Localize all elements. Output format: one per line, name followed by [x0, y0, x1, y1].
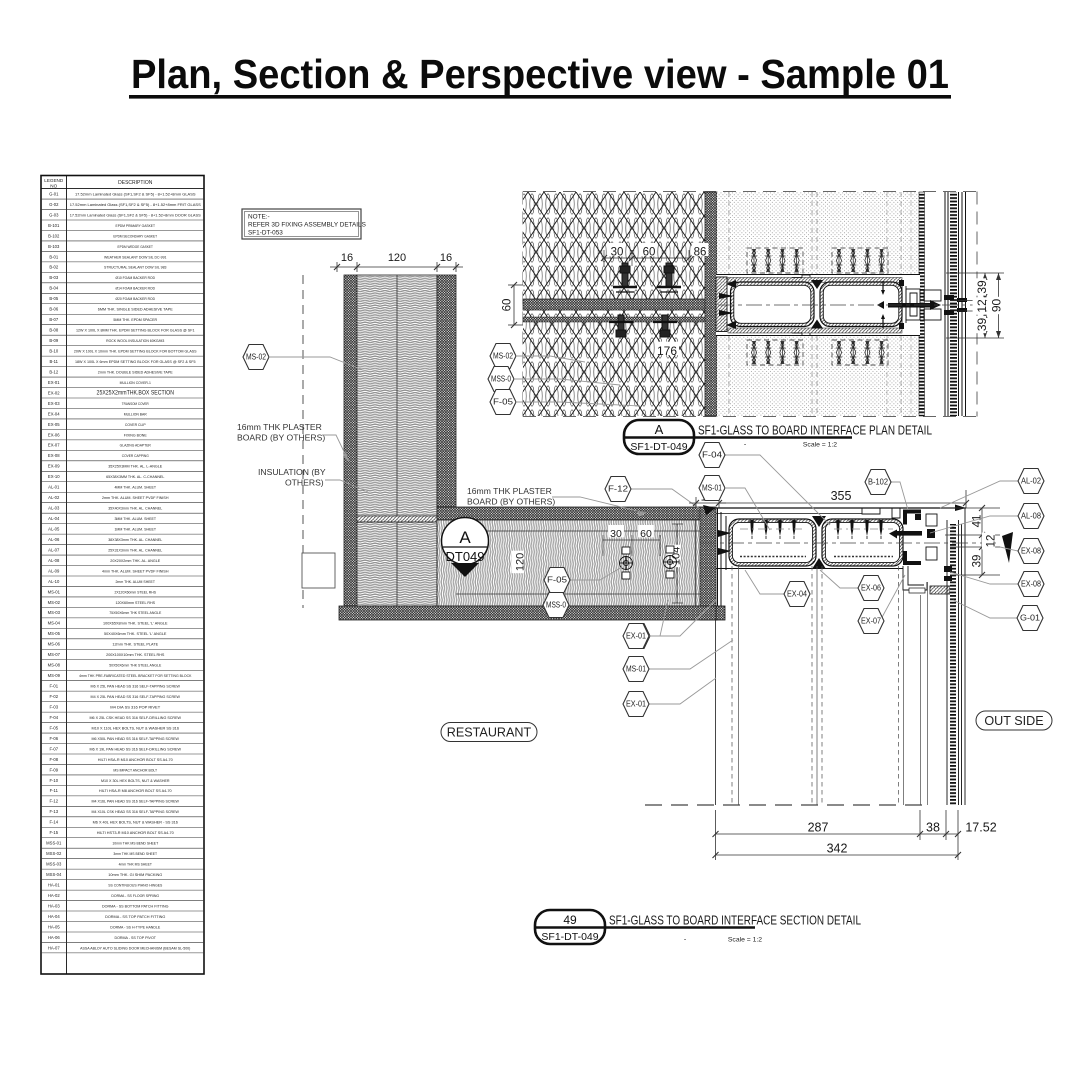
svg-text:ROCK WOOL INSULATION 60KG/M3: ROCK WOOL INSULATION 60KG/M3: [106, 338, 165, 343]
svg-text:SS CONTINUOUS PIANO HINGES: SS CONTINUOUS PIANO HINGES: [108, 882, 162, 887]
svg-text:EX-10: EX-10: [48, 474, 60, 479]
svg-text:75X50X6mm THK STEEL ANGLE: 75X50X6mm THK STEEL ANGLE: [109, 610, 161, 615]
svg-text:MS-04: MS-04: [48, 621, 61, 626]
svg-text:287: 287: [808, 821, 829, 835]
svg-text:AL-08: AL-08: [48, 558, 60, 563]
svg-text:B-05: B-05: [49, 296, 59, 301]
svg-text:M10 X 110L HEX BOLTS, NUT & WA: M10 X 110L HEX BOLTS, NUT & WASHER SS 31…: [92, 725, 180, 730]
svg-text:EX-03: EX-03: [48, 401, 60, 406]
svg-text:60: 60: [502, 299, 514, 312]
svg-text:38X38X3mm THK. AL. CHANNEL: 38X38X3mm THK. AL. CHANNEL: [108, 537, 163, 542]
svg-text:EX-05: EX-05: [48, 422, 60, 427]
svg-text:OTHERS): OTHERS): [285, 478, 324, 488]
svg-text:2X120X60mm STEEL RHS: 2X120X60mm STEEL RHS: [114, 589, 156, 594]
svg-text:EPDM SECONDARY GASKET: EPDM SECONDARY GASKET: [113, 233, 157, 238]
svg-text:REFER 3D FIXING ASSEMBLY DETAI: REFER 3D FIXING ASSEMBLY DETAILS: [248, 222, 366, 229]
svg-text:F-10: F-10: [49, 778, 58, 783]
svg-text:M6 X50L PAN HEAD SS 316 SELF-T: M6 X50L PAN HEAD SS 316 SELF-TAPPING SCR…: [92, 736, 180, 741]
svg-text:M4 X10L CSK HEAD SS 316 SELF-T: M4 X10L CSK HEAD SS 316 SELF-TAPPING SCR…: [92, 809, 180, 814]
svg-text:B-07: B-07: [49, 317, 59, 322]
svg-text:F-07: F-07: [49, 746, 58, 751]
svg-text:EX-08: EX-08: [1021, 580, 1041, 589]
svg-text:HA-06: HA-06: [48, 935, 61, 940]
svg-text:SF1-GLASS TO BOARD INTERFACE S: SF1-GLASS TO BOARD INTERFACE SECTION DET…: [609, 913, 861, 928]
svg-text:G-01: G-01: [1020, 614, 1040, 623]
svg-text:MS-02: MS-02: [48, 600, 61, 605]
svg-text:2mm THK. ALUM SHEET: 2mm THK. ALUM SHEET: [116, 579, 156, 584]
svg-text:F-11: F-11: [50, 788, 59, 793]
svg-text:GLAZING ADAPTER: GLAZING ADAPTER: [120, 443, 151, 448]
svg-text:MS-02: MS-02: [246, 353, 266, 362]
svg-text:B-10: B-10: [49, 348, 59, 353]
svg-text:39: 39: [972, 555, 984, 568]
svg-text:35X25X3MM THK. AL. L-ANGLE: 35X25X3MM THK. AL. L-ANGLE: [108, 464, 162, 469]
svg-text:60: 60: [640, 528, 652, 540]
svg-text:MS-01: MS-01: [48, 589, 61, 594]
svg-text:MSS-01: MSS-01: [46, 841, 62, 846]
svg-text:F-14: F-14: [49, 820, 58, 825]
svg-text:OUT SIDE: OUT SIDE: [984, 714, 1043, 728]
svg-text:HA-01: HA-01: [48, 882, 61, 887]
svg-text:HA-07: HA-07: [48, 945, 61, 950]
svg-text:B-102: B-102: [48, 233, 60, 238]
svg-text:Ø20 FOAM BACKER ROD: Ø20 FOAM BACKER ROD: [116, 296, 156, 301]
svg-text:M6 X 19L PAN HEAD SS 316 SELF-: M6 X 19L PAN HEAD SS 316 SELF-DRILLING S…: [90, 746, 182, 751]
svg-text:COVER CAPPING: COVER CAPPING: [122, 453, 149, 458]
svg-text:10mm THK. GI SHIM PACKING: 10mm THK. GI SHIM PACKING: [108, 872, 162, 877]
svg-text:EPDM WEDGE GASKET: EPDM WEDGE GASKET: [118, 244, 154, 249]
svg-text:EX-08: EX-08: [1021, 547, 1041, 556]
svg-text:MS-06: MS-06: [48, 642, 61, 647]
svg-text:EX-06: EX-06: [861, 584, 881, 593]
svg-text:EX-06: EX-06: [48, 432, 60, 437]
svg-text:ASSA ABLOY AUTO SLIDING DOOR M: ASSA ABLOY AUTO SLIDING DOOR MECHANISM (…: [80, 945, 191, 950]
svg-text:16mm THK PLASTER: 16mm THK PLASTER: [467, 486, 552, 496]
svg-text:M4 DIA SS 316 POP RIVET: M4 DIA SS 316 POP RIVET: [110, 704, 160, 709]
svg-text:F-05: F-05: [493, 398, 514, 407]
svg-text:WEATHER SEALANT DOW SIL DC-991: WEATHER SEALANT DOW SIL DC-991: [104, 254, 167, 259]
svg-text:B-06: B-06: [49, 307, 59, 312]
svg-text:AL-07: AL-07: [48, 547, 60, 552]
svg-text:AL-02: AL-02: [1021, 477, 1041, 486]
svg-text:4mm THK. ALUM. SHEET PVDF FINI: 4mm THK. ALUM. SHEET PVDF FINISH: [102, 568, 169, 573]
svg-text:SF1-DT-049: SF1-DT-049: [541, 931, 598, 943]
svg-text:39: 39: [975, 280, 989, 294]
svg-text:MULLION BAR: MULLION BAR: [124, 411, 147, 416]
svg-text:M6 X 25L PAN HEAD SS 316 SELF-: M6 X 25L PAN HEAD SS 316 SELF-TAPPING SC…: [91, 684, 181, 689]
svg-text:16: 16: [440, 252, 452, 264]
svg-text:17.52mm Laminated Glass (SF1,S: 17.52mm Laminated Glass (SF1,SF2 & SF5) …: [70, 202, 201, 207]
svg-text:A: A: [459, 528, 471, 547]
svg-text:RESTAURANT: RESTAURANT: [447, 726, 532, 740]
svg-text:F-09: F-09: [49, 767, 58, 772]
svg-text:100X65X8mm THK. STEEL 'L' ANGL: 100X65X8mm THK. STEEL 'L' ANGLE: [103, 621, 168, 626]
svg-text:M6 X 40L HEX BOLTS, NUT & WASH: M6 X 40L HEX BOLTS, NUT & WASHER - SS 31…: [93, 820, 179, 825]
svg-text:MSS-04: MSS-04: [46, 872, 62, 877]
svg-text:B-01: B-01: [49, 254, 59, 259]
svg-text:EX-07: EX-07: [48, 443, 60, 448]
svg-text:B-101: B-101: [48, 223, 60, 228]
svg-text:DESCRIPTION: DESCRIPTION: [118, 180, 153, 186]
svg-text:F-02: F-02: [49, 694, 58, 699]
svg-text:M4 X16L PAN HEAD SS 316 SELF-T: M4 X16L PAN HEAD SS 316 SELF-TAPPING SCR…: [92, 799, 180, 804]
svg-text:AL-09: AL-09: [48, 568, 60, 573]
svg-text:MS-09: MS-09: [48, 673, 61, 678]
svg-text:2mm THK. DOUBLE SIDED ADHESIV: 2mm THK. DOUBLE SIDED ADHESIVE TAPE: [98, 369, 173, 374]
svg-text:MS-07: MS-07: [48, 652, 61, 657]
svg-text:COVER CLIP: COVER CLIP: [125, 422, 146, 427]
svg-text:200X100X10mm THK. STEEL RHS: 200X100X10mm THK. STEEL RHS: [106, 652, 165, 657]
svg-text:M6 X 25L CSK HEAD SS 316 SELF-: M6 X 25L CSK HEAD SS 316 SELF-DRILLING S…: [90, 715, 182, 720]
svg-text:F-08: F-08: [49, 757, 58, 762]
svg-text:20X20X2mm THK. AL. ANGLE: 20X20X2mm THK. AL. ANGLE: [110, 558, 160, 563]
svg-text:355: 355: [831, 489, 852, 503]
svg-text:MSS-0: MSS-0: [546, 601, 567, 610]
svg-text:STRUCTURAL SEALANT DOW SIL 983: STRUCTURAL SEALANT DOW SIL 983: [104, 265, 167, 270]
svg-text:M10 X 30L HEX BOLTS, NUT & WAS: M10 X 30L HEX BOLTS, NUT & WASHER: [101, 778, 170, 783]
svg-text:MS-01: MS-01: [702, 484, 722, 493]
svg-text:AL-10: AL-10: [48, 579, 60, 584]
svg-text:SF1-DT-053: SF1-DT-053: [248, 230, 283, 237]
svg-text:F-01: F-01: [49, 684, 58, 689]
svg-text:5MM THK. EPDM SPACER: 5MM THK. EPDM SPACER: [113, 317, 157, 322]
svg-text:12mm THK. STEEL PLATE: 12mm THK. STEEL PLATE: [112, 642, 158, 647]
svg-text:Ø10 FOAM BACKER ROD: Ø10 FOAM BACKER ROD: [116, 275, 156, 280]
svg-text:3mm THK MS BEND SHEET: 3mm THK MS BEND SHEET: [113, 851, 157, 856]
svg-text:25X25X2mmTHK.BOX SECTION: 25X25X2mmTHK.BOX SECTION: [97, 389, 174, 396]
svg-text:50X50X6mm THK STEEL ANGLE: 50X50X6mm THK STEEL ANGLE: [109, 663, 161, 668]
svg-text:10mm THK MS BEND SHEET: 10mm THK MS BEND SHEET: [112, 841, 158, 846]
svg-text:35X40X3mm THK. AL. CHANNEL: 35X40X3mm THK. AL. CHANNEL: [108, 506, 163, 511]
svg-text:HA-03: HA-03: [48, 903, 61, 908]
svg-text:MSS-03: MSS-03: [46, 862, 62, 867]
svg-text:F-06: F-06: [49, 736, 58, 741]
svg-text:G-01: G-01: [49, 191, 59, 196]
svg-text:Scale = 1:2: Scale = 1:2: [803, 442, 837, 449]
svg-text:EPDM PRIMARY GASKET: EPDM PRIMARY GASKET: [116, 223, 156, 228]
svg-text:Plan, Section & Perspective vi: Plan, Section & Perspective view - Sampl…: [131, 51, 949, 97]
svg-text:90: 90: [989, 299, 1003, 313]
svg-text:65X38X3MM THK. AL. C-CHANNEL: 65X38X3MM THK. AL. C-CHANNEL: [106, 474, 165, 479]
svg-text:HILTI HSA-R M10 ANCHOR BOLT SS: HILTI HSA-R M10 ANCHOR BOLT SS A4-70: [98, 757, 174, 762]
svg-text:EX-01: EX-01: [48, 380, 60, 385]
svg-text:AL-08: AL-08: [1021, 512, 1041, 521]
svg-text:EX-01: EX-01: [626, 632, 646, 641]
svg-text:3MM THK. ALUM. SHEET: 3MM THK. ALUM. SHEET: [114, 516, 156, 521]
svg-text:MSS-0: MSS-0: [491, 375, 512, 384]
svg-text:1MM THK. ALUM. SHEET: 1MM THK. ALUM. SHEET: [114, 526, 156, 531]
svg-text:EX-02: EX-02: [48, 390, 60, 395]
svg-text:49: 49: [563, 913, 577, 927]
svg-text:17.52mm Laminated Glass (SF1,S: 17.52mm Laminated Glass (SF1,SF2 & SF5) …: [75, 191, 196, 196]
svg-text:2mm THK. ALUM. SHEET PVDF FINI: 2mm THK. ALUM. SHEET PVDF FINISH: [102, 495, 169, 500]
svg-text:AL-01: AL-01: [48, 485, 60, 490]
svg-text:B-12: B-12: [49, 369, 59, 374]
svg-text:60: 60: [643, 247, 656, 259]
svg-text:F-05: F-05: [49, 725, 58, 730]
svg-text:B-103: B-103: [48, 244, 60, 249]
svg-text:F-05: F-05: [547, 576, 568, 585]
svg-text:B-09: B-09: [49, 338, 59, 343]
svg-text:16mm THK PLASTER: 16mm THK PLASTER: [237, 422, 322, 432]
svg-text:17.52: 17.52: [965, 821, 996, 835]
svg-text:18W X 100L X 6mm EPDM SETTING: 18W X 100L X 6mm EPDM SETTING BLOCK FOR …: [75, 359, 196, 364]
svg-text:LEGEND: LEGEND: [44, 178, 64, 183]
svg-text:4mm THK PRE-FABRICATED STEEL B: 4mm THK PRE-FABRICATED STEEL BRACKET FOR…: [79, 673, 192, 678]
svg-text:86: 86: [694, 247, 707, 259]
svg-text:MS-03: MS-03: [48, 610, 61, 615]
svg-text:DORMA - SS TOP PATCH FITTING: DORMA - SS TOP PATCH FITTING: [105, 914, 165, 919]
svg-text:Ø14 FOAM BACKER ROD: Ø14 FOAM BACKER ROD: [116, 286, 156, 291]
svg-text:20W X 100L X 10mm THK. EPDM S: 20W X 100L X 10mm THK. EPDM SETTING BLOC…: [74, 348, 197, 353]
svg-text:12W X 100L X 8MM THK. EPDM SE: 12W X 100L X 8MM THK. EPDM SETTING BLOCK…: [76, 328, 195, 333]
svg-text:MS-01: MS-01: [626, 665, 646, 674]
svg-text:NOTE:-: NOTE:-: [248, 214, 270, 221]
svg-text:MULLION COVER-1: MULLION COVER-1: [120, 380, 152, 385]
svg-text:AL-02: AL-02: [48, 495, 60, 500]
svg-text:38: 38: [926, 821, 940, 835]
svg-text:B-03: B-03: [49, 275, 59, 280]
svg-text:HILTI HSA-R M8 ANCHOR BOLT SS: HILTI HSA-R M8 ANCHOR BOLT SS A4-70: [99, 788, 173, 793]
svg-text:30: 30: [610, 528, 622, 540]
svg-text:BOARD (BY OTHERS): BOARD (BY OTHERS): [467, 497, 555, 507]
svg-text:MSS-02: MSS-02: [46, 851, 62, 856]
svg-text:25X31X3mm THK. AL. CHANNEL: 25X31X3mm THK. AL. CHANNEL: [108, 547, 163, 552]
svg-text:FIXING BONE: FIXING BONE: [124, 432, 147, 437]
svg-text:4MM THK. ALUM. SHEET: 4MM THK. ALUM. SHEET: [114, 485, 156, 490]
svg-text:DORMA - SS TOP PIVOT: DORMA - SS TOP PIVOT: [114, 935, 156, 940]
svg-text:120: 120: [388, 252, 406, 264]
svg-text:B-04: B-04: [49, 286, 59, 291]
svg-text:MS-08: MS-08: [48, 663, 61, 668]
svg-text:50X40X6mm THK. STEEL 'L' ANGLE: 50X40X6mm THK. STEEL 'L' ANGLE: [104, 631, 167, 636]
svg-text:120X60mm STEEL RHS: 120X60mm STEEL RHS: [116, 600, 156, 605]
svg-text:16: 16: [341, 252, 353, 264]
svg-text:17.52mm Laminated Glass (SF1,S: 17.52mm Laminated Glass (SF1,SF2 & SF5) …: [70, 212, 201, 217]
svg-text:F-12: F-12: [608, 485, 628, 494]
svg-text:F-03: F-03: [49, 704, 58, 709]
svg-text:B-11: B-11: [49, 359, 58, 364]
svg-text:DT049: DT049: [445, 549, 484, 564]
svg-text:BOARD (BY OTHERS): BOARD (BY OTHERS): [237, 433, 325, 443]
svg-text:B-08: B-08: [49, 328, 59, 333]
svg-text:HA-02: HA-02: [48, 893, 61, 898]
svg-text:F-04: F-04: [49, 715, 58, 720]
svg-text:MS-05: MS-05: [48, 631, 61, 636]
svg-text:A: A: [655, 422, 664, 437]
svg-text:MS IMPACT ANCHOR BOLT: MS IMPACT ANCHOR BOLT: [113, 767, 157, 772]
svg-text:4mm THK MS SHEET: 4mm THK MS SHEET: [119, 862, 153, 867]
svg-text:TRANSOM COVER: TRANSOM COVER: [122, 401, 149, 406]
svg-text:NO: NO: [50, 184, 57, 189]
svg-text:DORMA - SS FLOOR SPRING: DORMA - SS FLOOR SPRING: [111, 893, 159, 898]
svg-text:HA-05: HA-05: [48, 924, 61, 929]
svg-text:AL-05: AL-05: [48, 526, 60, 531]
svg-text:EX-07: EX-07: [861, 617, 881, 626]
svg-text:342: 342: [827, 842, 848, 856]
svg-text:Scale = 1:2: Scale = 1:2: [728, 937, 762, 944]
svg-text:EX-01: EX-01: [626, 700, 646, 709]
svg-text:SF1-DT-049: SF1-DT-049: [630, 441, 687, 453]
svg-text:120: 120: [515, 553, 527, 571]
svg-text:30: 30: [611, 247, 624, 259]
svg-text:39: 39: [975, 318, 989, 332]
svg-text:INSULATION (BY: INSULATION (BY: [258, 467, 326, 477]
svg-text:SF1-GLASS TO BOARD INTERFACE P: SF1-GLASS TO BOARD INTERFACE PLAN DETAIL: [698, 423, 932, 438]
svg-text:EX-04: EX-04: [48, 411, 60, 416]
svg-text:EX-04: EX-04: [787, 590, 808, 599]
svg-text:HA-04: HA-04: [48, 914, 61, 919]
svg-text:G-03: G-03: [49, 212, 59, 217]
svg-text:12: 12: [975, 299, 989, 313]
svg-text:F-12: F-12: [49, 799, 58, 804]
svg-text:HILTI HST3-R M10 ANCHOR BOLT S: HILTI HST3-R M10 ANCHOR BOLT SS A4-70: [97, 830, 175, 835]
svg-text:176: 176: [657, 344, 677, 358]
svg-text:DORMA - SS BOTTOM PATCH FITTI: DORMA - SS BOTTOM PATCH FITTING: [102, 903, 169, 908]
svg-text:F-13: F-13: [49, 809, 58, 814]
svg-text:M4 X 25L PAN HEAD SS 316 SELF-: M4 X 25L PAN HEAD SS 316 SELF-TAPPING SC…: [91, 694, 181, 699]
svg-text:AL-03: AL-03: [48, 506, 60, 511]
svg-text:DORMA - SS H-TYPE HANDLE: DORMA - SS H-TYPE HANDLE: [110, 924, 160, 929]
svg-text:MS-02: MS-02: [493, 352, 513, 361]
svg-text:F-15: F-15: [49, 830, 58, 835]
svg-text:AL-04: AL-04: [48, 516, 60, 521]
svg-text:EX-09: EX-09: [48, 464, 60, 469]
svg-text:G-02: G-02: [49, 202, 59, 207]
svg-text:B-02: B-02: [49, 265, 59, 270]
svg-text:B-102: B-102: [868, 478, 888, 487]
svg-text:12: 12: [986, 535, 998, 548]
svg-text:F-04: F-04: [702, 451, 723, 460]
svg-text:EX-08: EX-08: [48, 453, 60, 458]
svg-text:AL-06: AL-06: [48, 537, 60, 542]
svg-text:6MM THK. SINGLE SIDED ADHESIV: 6MM THK. SINGLE SIDED ADHESIVE TAPE: [98, 307, 173, 312]
